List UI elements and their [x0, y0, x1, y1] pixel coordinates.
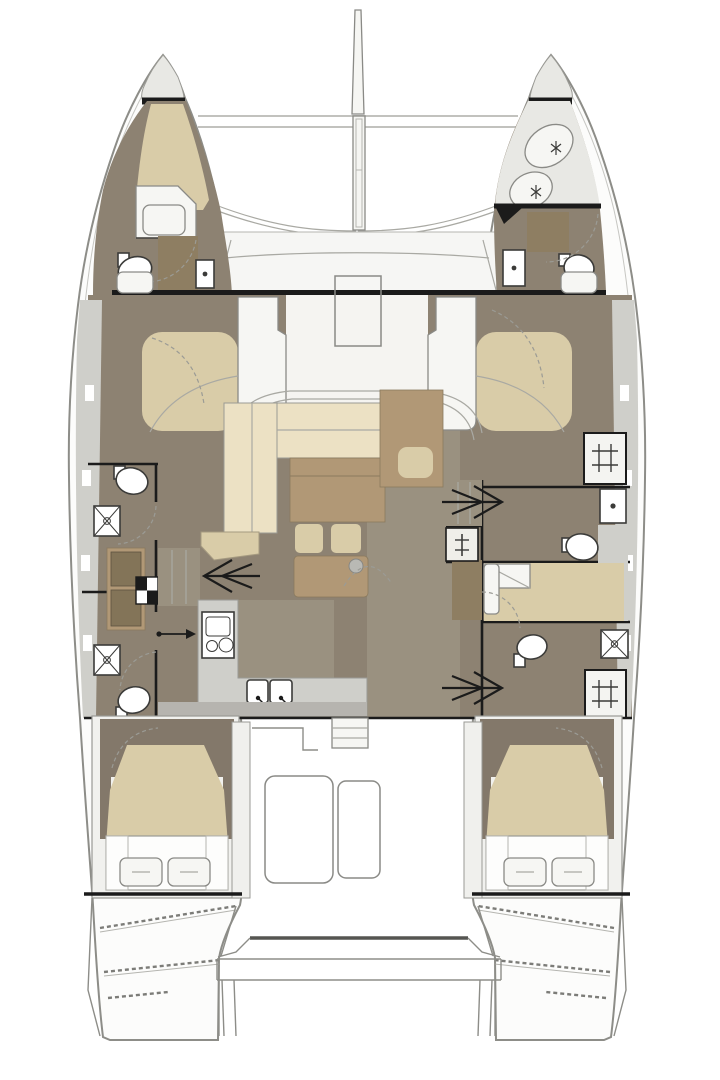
starboard-single-berth: [484, 563, 624, 621]
portlight: [85, 385, 94, 401]
platform-supports: [222, 980, 492, 1036]
plan-svg: [0, 0, 720, 1080]
longitudinal-beam: [353, 116, 365, 230]
portlight: [83, 635, 92, 651]
portlight: [82, 470, 91, 486]
port-bow-sink: [196, 260, 214, 288]
starboard-bow-sink: [503, 250, 525, 286]
cockpit-step: [332, 718, 368, 748]
port-bow-seat-cushion: [143, 205, 185, 235]
berth-pillow: [484, 564, 499, 614]
starboard-deck-hatch: [561, 272, 597, 293]
catamaran-floor-plan: [0, 0, 720, 1080]
deck-grate-aft: [585, 670, 626, 718]
deck-grate-forward: [584, 433, 626, 484]
port-aft-cabin: [92, 716, 239, 898]
port-deck-hatch: [117, 272, 153, 293]
salon-entry-floor: [286, 295, 428, 403]
starboard-bow-shower-tray: [527, 212, 569, 252]
sofa-left: [224, 403, 277, 533]
port-bow-shower-tray: [158, 236, 198, 292]
cockpit-table: [265, 776, 333, 883]
port-forward-shower: [94, 506, 120, 536]
forward-bulkhead-line: [112, 290, 606, 295]
sunpad-starboard: [476, 332, 572, 431]
starboard-cabinet: [452, 560, 482, 620]
double-sink: [247, 680, 292, 704]
starboard-bow-tip: [529, 55, 572, 101]
dinette-table: [290, 458, 385, 522]
starboard-sink: [600, 489, 626, 523]
bowsprit: [352, 10, 364, 114]
port-bow-tip: [142, 55, 185, 101]
port-aft-shower: [94, 645, 120, 675]
forward-cockpit: [212, 232, 502, 292]
starboard-aft-shower: [601, 630, 628, 658]
seat-cushion: [295, 524, 323, 553]
port-hull-interior: [93, 101, 232, 295]
seat-cushion: [331, 524, 361, 553]
swim-platform: [217, 938, 501, 1036]
stove: [202, 612, 234, 658]
table-leg: [349, 559, 363, 573]
port-companionway-steps: [136, 577, 158, 604]
portlight: [81, 555, 90, 571]
starboard-ladder: [446, 528, 478, 561]
cockpit-bench: [338, 781, 380, 878]
port-stairs: [158, 548, 200, 606]
cockpit-side-bench: [232, 722, 250, 898]
ottoman: [398, 447, 433, 478]
mast-and-bowsprit: [352, 10, 365, 230]
cockpit-side-bench-starboard: [464, 722, 482, 898]
starboard-aft-cabin: [475, 716, 622, 898]
aft-double-berth: [106, 745, 228, 845]
galley-floor: [238, 600, 334, 678]
